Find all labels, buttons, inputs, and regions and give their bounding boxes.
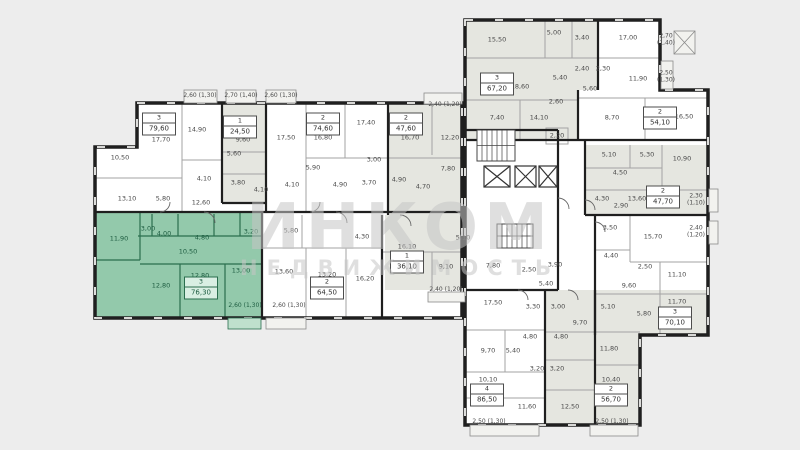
apartment-badge[interactable]: 247,70 [646, 186, 680, 209]
apartment-rooms-count: 3 [143, 114, 175, 124]
room-area-label: 5,90 [306, 165, 320, 172]
apartment-total-area: 47,70 [647, 197, 679, 208]
room-area-label: 11,10 [668, 272, 687, 279]
common-area-label: 2,20 [550, 133, 564, 140]
apartment-badge[interactable]: 124,50 [223, 116, 257, 139]
apartment-badge[interactable]: 370,10 [658, 307, 692, 330]
room-area-label: 16,20 [356, 276, 375, 283]
room-area-label: 12,60 [192, 200, 211, 207]
common-area-label: 2,60 (1,30) [183, 93, 216, 100]
apartment-total-area: 56,70 [595, 395, 627, 406]
apartment-rooms-count: 2 [390, 114, 422, 124]
room-area-label: 12,80 [152, 283, 171, 290]
room-area-label: 3,20 [530, 366, 544, 373]
apartment-rooms-count: 3 [481, 74, 513, 84]
room-area-label: 2,90 [614, 203, 628, 210]
room-area-label: 4,90 [333, 182, 347, 189]
common-area-label: 2,50 [522, 267, 536, 274]
room-area-label: 4,80 [195, 235, 209, 242]
room-area-label: 17,00 [619, 35, 638, 42]
room-area-label: 3,80 [231, 180, 245, 187]
room-area-label: 3,50 [603, 225, 617, 232]
apartment-rooms-count: 4 [471, 385, 503, 395]
room-area-label: 13,00 [232, 268, 251, 275]
room-area-label: 10,50 [179, 249, 198, 256]
balcony-dimension-label: 2,50 (1,30) [595, 419, 628, 426]
apartment-badge[interactable]: 254,10 [643, 107, 677, 130]
apartment-total-area: 54,10 [644, 118, 676, 129]
room-area-label: 16,50 [675, 114, 694, 121]
apartment-rooms-count: 1 [391, 252, 423, 262]
label-layer: 379,6017,7014,9010,5013,105,8012,604,101… [0, 0, 800, 450]
apartment-badge[interactable]: 256,70 [594, 384, 628, 407]
apartment-badge[interactable]: 274,60 [306, 113, 340, 136]
apartment-total-area: 67,20 [481, 84, 513, 95]
room-area-label: 11,70 [668, 299, 687, 306]
room-area-label: 16,70 [401, 135, 420, 142]
room-area-label: 5,10 [601, 304, 615, 311]
common-area-label: 5,40 [539, 281, 553, 288]
apartment-badge[interactable]: 367,20 [480, 73, 514, 96]
apartment-total-area: 47,60 [390, 124, 422, 135]
common-area-label: 2,70 (1,40) [224, 93, 257, 100]
apartment-badge[interactable]: 247,60 [389, 113, 423, 136]
room-area-label: 12,20 [441, 135, 460, 142]
room-area-label: 5,60 [583, 86, 597, 93]
apartment-badge[interactable]: 379,60 [142, 113, 176, 136]
room-area-label: 9,70 [481, 348, 495, 355]
apartment-rooms-count: 2 [644, 108, 676, 118]
room-area-label: 3,00 [551, 304, 565, 311]
room-area-label: 15,50 [488, 37, 507, 44]
room-area-label: 3,70 [362, 180, 376, 187]
room-area-label: 10,90 [673, 156, 692, 163]
room-area-label: 17,40 [357, 120, 376, 127]
room-area-label: 4,30 [595, 196, 609, 203]
room-area-label: 11,90 [629, 76, 648, 83]
apartment-rooms-count: 2 [647, 187, 679, 197]
apartment-total-area: 64,50 [311, 288, 343, 299]
apartment-total-area: 79,60 [143, 124, 175, 135]
common-area-label: 2,60 (1,30) [264, 93, 297, 100]
room-area-label: 5,00 [547, 30, 561, 37]
apartment-rooms-count: 2 [595, 385, 627, 395]
room-area-label: 4,40 [604, 253, 618, 260]
room-area-label: 4,80 [523, 334, 537, 341]
room-area-label: 5,40 [506, 348, 520, 355]
room-area-label: 15,70 [644, 234, 663, 241]
apartment-rooms-count: 3 [659, 308, 691, 318]
room-area-label: 13,60 [275, 269, 294, 276]
room-area-label: 5,30 [640, 152, 654, 159]
room-area-label: 5,10 [602, 152, 616, 159]
balcony-dimension-label: 2,60 (1,30) [228, 303, 261, 310]
floor-plan: 379,6017,7014,9010,5013,105,8012,604,101… [0, 0, 800, 450]
balcony-dimension-label: 2,50 (1,30) [472, 419, 505, 426]
apartment-total-area: 36,10 [391, 262, 423, 273]
room-area-label: 3,00 [141, 226, 155, 233]
room-area-label: 12,50 [561, 404, 580, 411]
room-area-label: 13,10 [118, 196, 137, 203]
apartment-rooms-count: 1 [224, 117, 256, 127]
room-area-label: 3,20 [550, 366, 564, 373]
room-area-label: 5,80 [637, 311, 651, 318]
room-area-label: 4,90 [392, 177, 406, 184]
balcony-dimension-label: 2,50 (1,30) [657, 71, 675, 84]
room-area-label: 16,10 [398, 244, 417, 251]
room-area-label: 13,60 [628, 196, 647, 203]
room-area-label: 4,10 [285, 182, 299, 189]
common-area-label: 3,90 [548, 262, 562, 269]
room-area-label: 11,60 [518, 404, 537, 411]
room-area-label: 4,70 [416, 184, 430, 191]
room-area-label: 8,70 [605, 115, 619, 122]
room-area-label: 16,80 [314, 135, 333, 142]
room-area-label: 17,50 [277, 135, 296, 142]
apartment-total-area: 76,30 [185, 288, 217, 299]
room-area-label: 5,40 [553, 75, 567, 82]
apartment-total-area: 74,60 [307, 124, 339, 135]
apartment-total-area: 86,50 [471, 395, 503, 406]
room-area-label: 5,60 [227, 151, 241, 158]
room-area-label: 2,60 [549, 99, 563, 106]
apartment-badge[interactable]: 376,30 [184, 277, 218, 300]
apartment-total-area: 70,10 [659, 318, 691, 329]
room-area-label: 14,90 [188, 127, 207, 134]
apartment-rooms-count: 3 [185, 278, 217, 288]
balcony-dimension-label: 2,30 (1,10) [687, 194, 705, 207]
apartment-badge[interactable]: 136,10 [390, 251, 424, 274]
room-area-label: 9,10 [439, 264, 453, 271]
apartment-rooms-count: 2 [307, 114, 339, 124]
apartment-rooms-count: 2 [311, 278, 343, 288]
room-area-label: 5,10 [456, 235, 470, 242]
room-area-label: 4,50 [613, 170, 627, 177]
balcony-dimension-label: 2,60 (1,30) [272, 303, 305, 310]
balcony-dimension-label: 2,70 (1,40) [657, 34, 675, 47]
room-area-label: 5,80 [284, 228, 298, 235]
common-area-label: 7,80 [486, 263, 500, 270]
room-area-label: 4,80 [554, 334, 568, 341]
apartment-badge[interactable]: 486,50 [470, 384, 504, 407]
room-area-label: 7,40 [490, 115, 504, 122]
room-area-label: 3,20 [244, 229, 258, 236]
room-area-label: 5,80 [156, 196, 170, 203]
room-area-label: 4,00 [157, 231, 171, 238]
room-area-label: 3,40 [575, 35, 589, 42]
room-area-label: 10,40 [602, 377, 621, 384]
room-area-label: 9,60 [622, 283, 636, 290]
room-area-label: 3,00 [367, 157, 381, 164]
room-area-label: 4,10 [254, 187, 268, 194]
room-area-label: 7,80 [441, 166, 455, 173]
apartment-total-area: 24,50 [224, 127, 256, 138]
room-area-label: 11,80 [600, 346, 619, 353]
balcony-dimension-label: 2,40 (1,20) [687, 226, 705, 239]
room-area-label: 2,50 [638, 264, 652, 271]
apartment-badge[interactable]: 264,50 [310, 277, 344, 300]
room-area-label: 2,30 [596, 66, 610, 73]
room-area-label: 10,10 [479, 377, 498, 384]
common-area-label: 2,40 (1,20) [428, 102, 461, 109]
room-area-label: 2,40 [575, 66, 589, 73]
room-area-label: 14,10 [530, 115, 549, 122]
room-area-label: 4,30 [355, 234, 369, 241]
balcony-dimension-label: 2,40 (1,20) [429, 287, 462, 294]
room-area-label: 11,90 [110, 236, 129, 243]
room-area-label: 17,70 [152, 137, 171, 144]
room-area-label: 9,70 [573, 320, 587, 327]
room-area-label: 10,50 [111, 155, 130, 162]
room-area-label: 3,30 [526, 304, 540, 311]
room-area-label: 4,10 [197, 176, 211, 183]
room-area-label: 17,50 [484, 300, 503, 307]
